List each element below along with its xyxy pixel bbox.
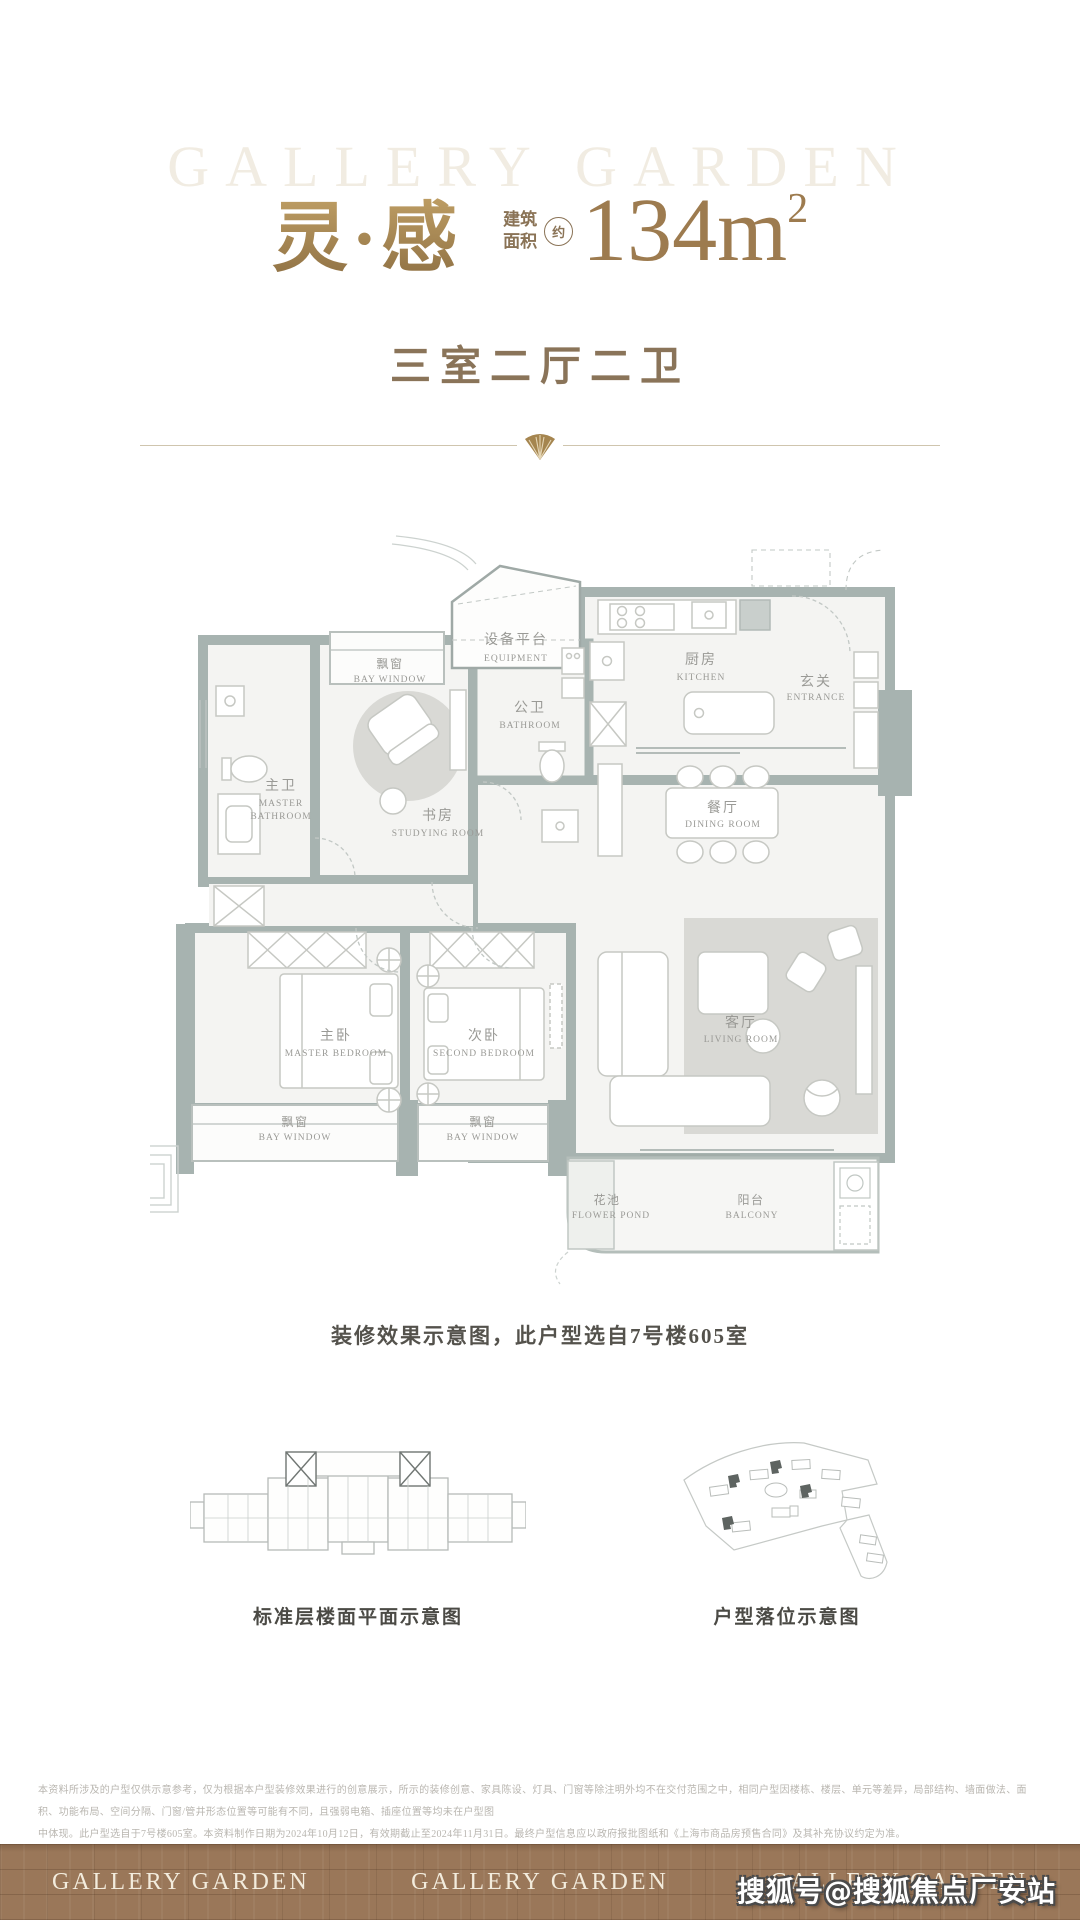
label-masterbath-en1: MASTER (259, 799, 304, 809)
disclaimer: 本资料所涉及的户型仅供示意参考，仅为根据本户型装修效果进行的创意展示，所示的装修… (38, 1780, 1046, 1846)
label-living-en: LIVING ROOM (704, 1035, 779, 1045)
floorplan: 设备平台 EQUIPMENT 飘窗 BAY WINDOW 主卫 MASTER B… (150, 460, 940, 1310)
divider-line-left (140, 445, 517, 446)
footer-brand-left: GALLERY GARDEN (52, 1869, 310, 1896)
layout-subtitle: 三室二厅二卫 (0, 332, 1080, 392)
label-equipment-zh: 设备平台 (484, 631, 548, 648)
label-study-zh: 书房 (422, 808, 454, 824)
label-entrance-zh: 玄关 (800, 673, 832, 690)
label-balcony-en: BALCONY (726, 1211, 779, 1221)
label-dining-zh: 餐厅 (707, 800, 739, 816)
label-bayleft-en: BAY WINDOW (259, 1133, 332, 1143)
label-kitchen-zh: 厨房 (685, 652, 717, 668)
plan-caption: 装修效果示意图，此户型选自7号楼605室 (0, 1320, 1080, 1350)
diamond-ornament-icon (517, 428, 563, 462)
poster-page: GALLERY GARDEN 灵·感 建筑 面积 约 134m2 三室二厅二卫 (0, 0, 1080, 1920)
label-flower-zh: 花池 (593, 1192, 620, 1207)
label-baymid-zh: 飘窗 (469, 1115, 496, 1129)
approx-badge: 约 (544, 217, 573, 246)
label-secondbed-en: SECOND BEDROOM (433, 1049, 535, 1059)
area-prefix-line1: 建筑 (503, 210, 537, 229)
area-value: 134m2 (582, 186, 808, 276)
disclaimer-line1: 本资料所涉及的户型仅供示意参考，仅为根据本户型装修效果进行的创意展示，所示的装修… (38, 1780, 1046, 1824)
floorplate-caption: 标准层楼面平面示意图 (190, 1602, 526, 1629)
label-dining-en: DINING ROOM (685, 820, 761, 830)
label-entrance-en: ENTRANCE (787, 693, 846, 703)
footer-brand-center: GALLERY GARDEN (411, 1869, 669, 1896)
balcony-shape (556, 1158, 879, 1284)
label-masterbath-en2: BATHROOM (250, 812, 311, 822)
area-prefix: 建筑 面积 (503, 209, 537, 253)
label-equipment-en: EQUIPMENT (484, 654, 548, 664)
label-kitchen-en: KITCHEN (677, 673, 726, 683)
label-study-en: STUDYING ROOM (392, 829, 484, 839)
label-bayleft-zh: 飘窗 (281, 1115, 308, 1129)
label-baymid-en: BAY WINDOW (447, 1133, 520, 1143)
area-number: 134m (582, 181, 787, 280)
location-diagram (672, 1428, 902, 1588)
label-bath2-en: BATHROOM (499, 721, 560, 731)
label-living-zh: 客厅 (725, 1014, 757, 1031)
label-bath2-zh: 公卫 (514, 701, 546, 716)
label-secondbed-zh: 次卧 (468, 1028, 500, 1044)
floorplate-diagram (190, 1432, 526, 1582)
label-balcony-zh: 阳台 (737, 1192, 764, 1207)
sohu-watermark: 搜狐号@搜狐焦点厂安站 (737, 1870, 1056, 1910)
terrace-steps (150, 1146, 178, 1212)
label-baytop-zh: 飘窗 (376, 657, 403, 671)
location-caption: 户型落位示意图 (672, 1602, 902, 1629)
label-flower-en: FLOWER POND (572, 1211, 650, 1221)
title-row: 灵·感 建筑 面积 约 134m2 (0, 176, 1080, 286)
divider-line-right (563, 445, 940, 446)
label-masterbed-en: MASTER BEDROOM (285, 1049, 387, 1059)
divider (140, 428, 940, 462)
area-prefix-line2: 面积 (503, 232, 537, 251)
page-title: 灵·感 (272, 176, 461, 286)
label-masterbed-zh: 主卧 (320, 1028, 352, 1044)
disclaimer-line2: 中体现。此户型选自于7号楼605室。本资料制作日期为2024年10月12日，有效… (38, 1824, 1046, 1846)
label-baytop-en: BAY WINDOW (354, 675, 427, 685)
label-masterbath-zh: 主卫 (265, 778, 297, 794)
area-sup: 2 (787, 186, 808, 232)
